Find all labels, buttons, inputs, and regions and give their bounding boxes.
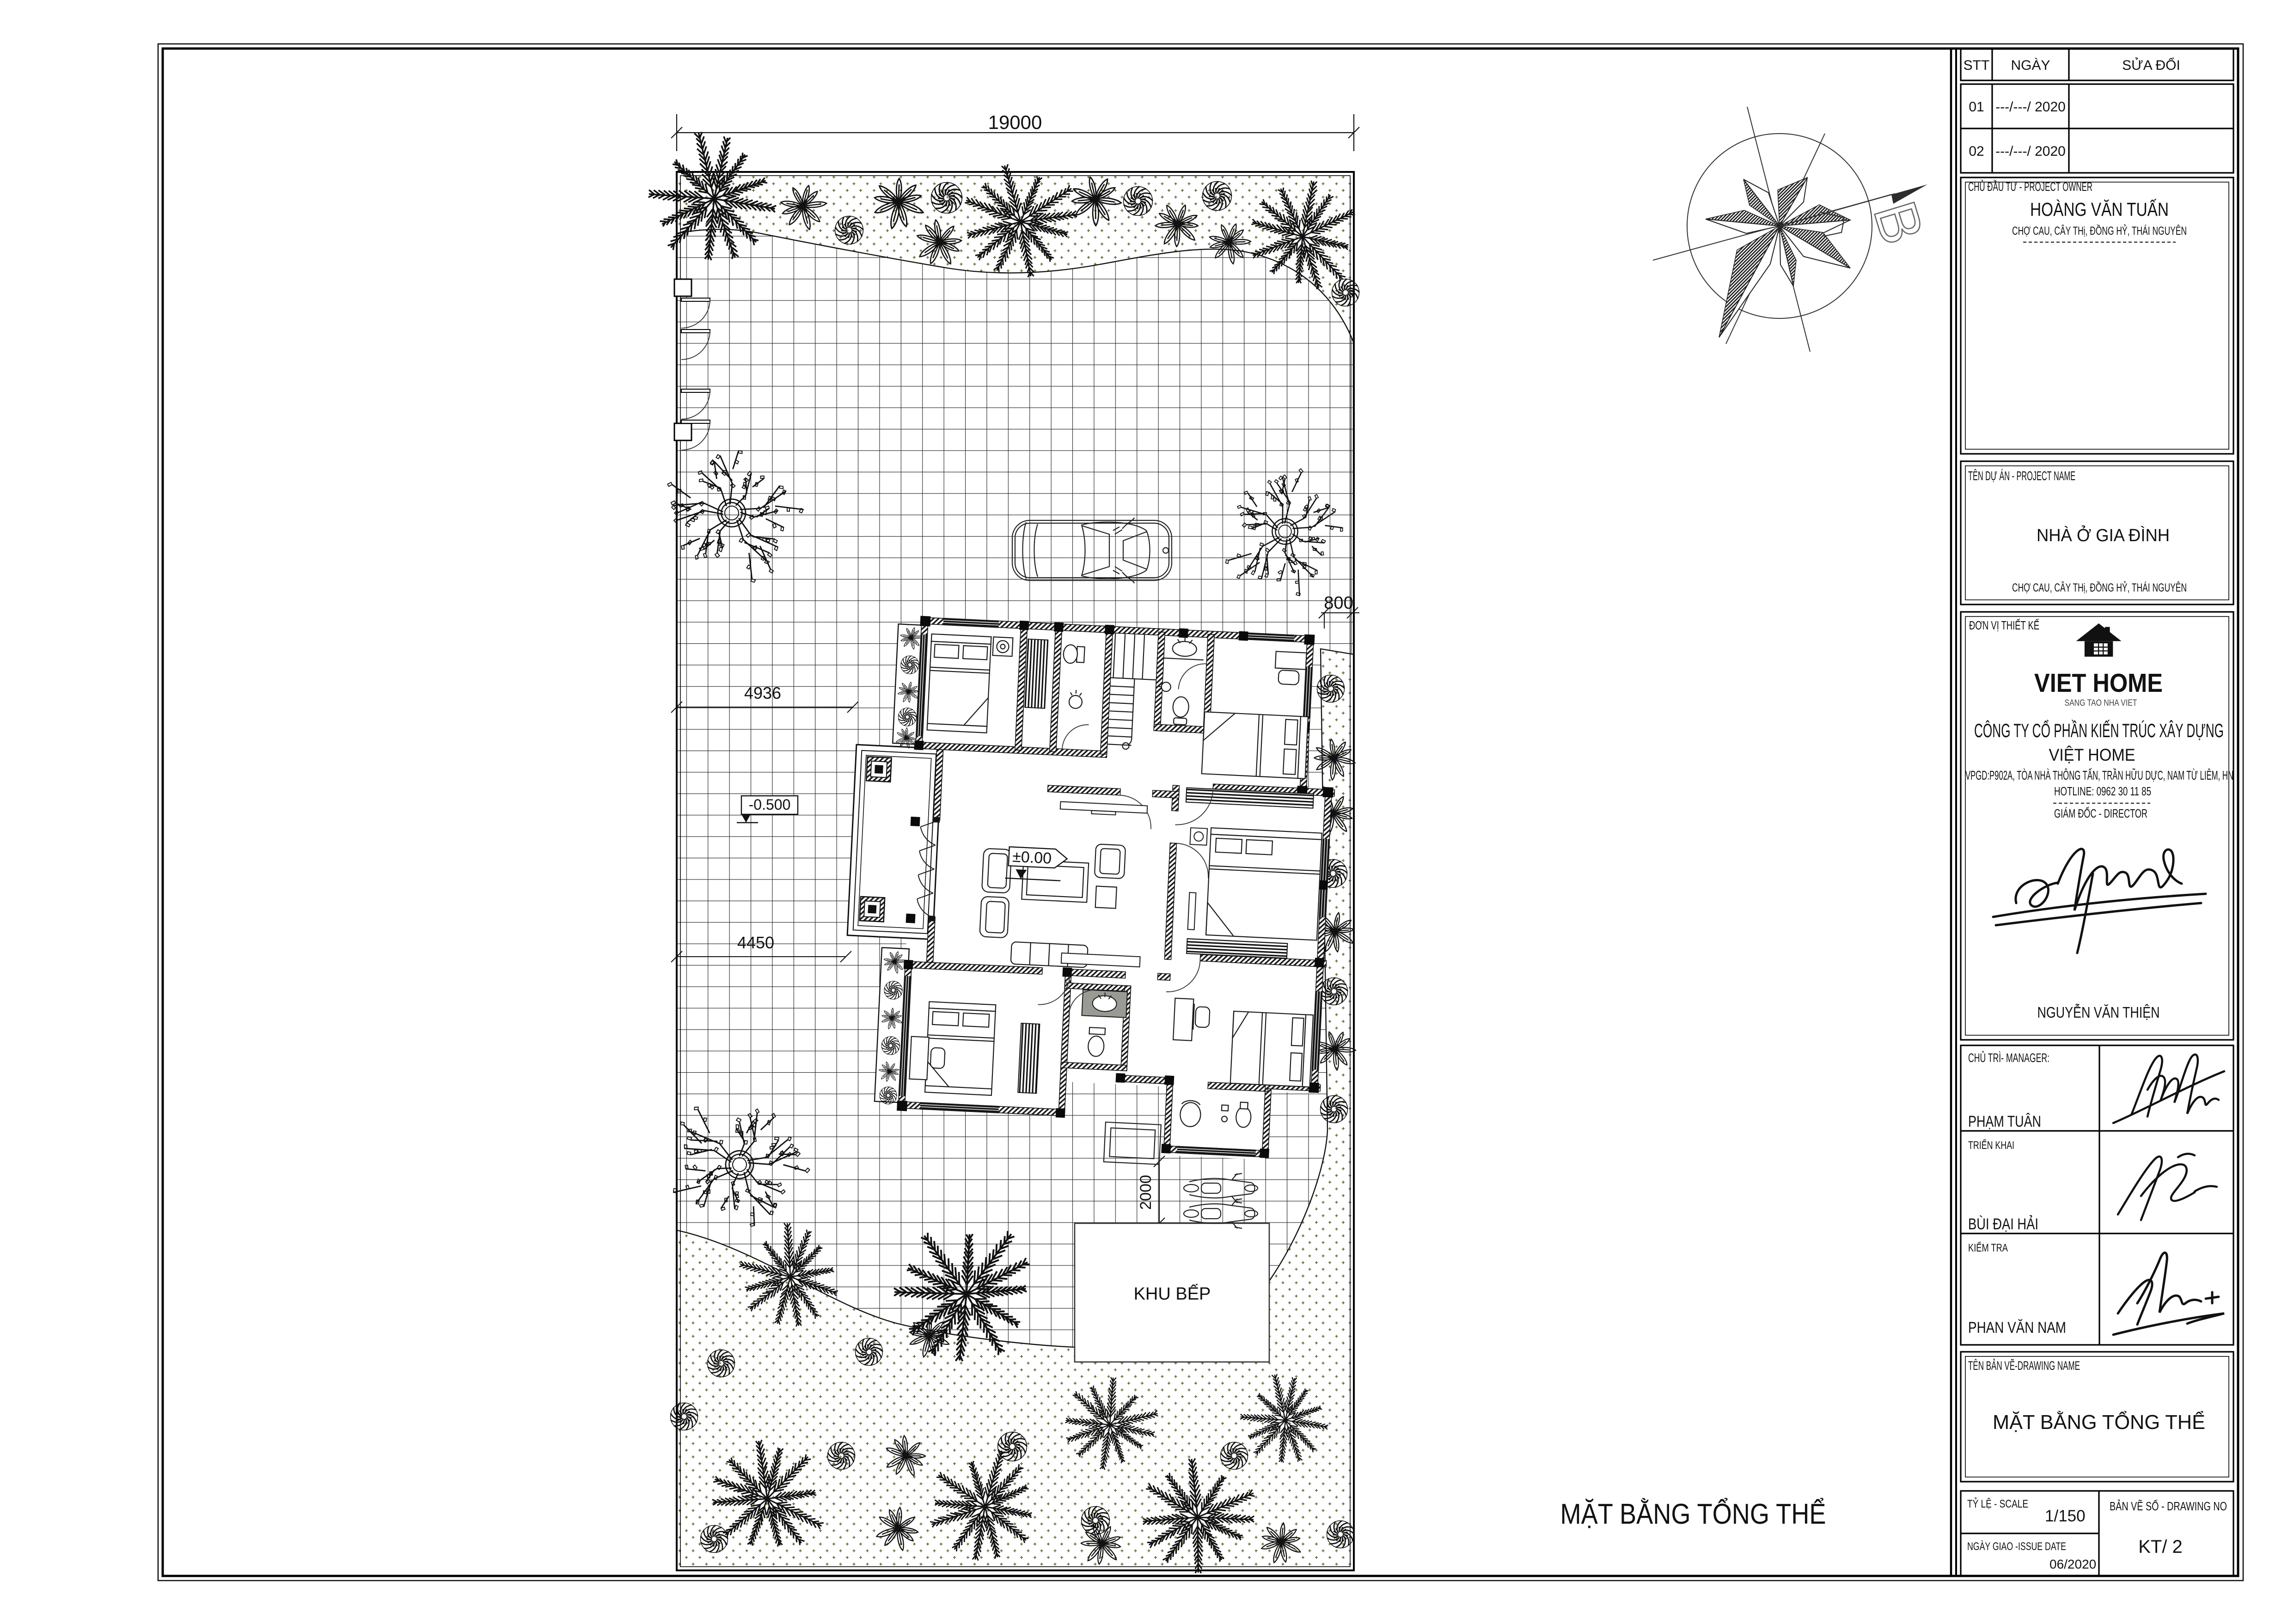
svg-text:PHAN VĂN NAM: PHAN VĂN NAM bbox=[1968, 1319, 2066, 1337]
svg-text:BẢN VẼ SỐ - DRAWING NO: BẢN VẼ SỐ - DRAWING NO bbox=[2110, 1499, 2227, 1513]
svg-text:TỶ LỆ - SCALE: TỶ LỆ - SCALE bbox=[1967, 1497, 2028, 1510]
svg-text:SANG TAO NHA VIET: SANG TAO NHA VIET bbox=[2065, 698, 2137, 708]
svg-text:TÊN DỰ ÁN - PROJECT NAME: TÊN DỰ ÁN - PROJECT NAME bbox=[1968, 469, 2075, 483]
svg-text:CHỦ ĐẦU TƯ - PROJECT OWNER: CHỦ ĐẦU TƯ - PROJECT OWNER bbox=[1968, 179, 2092, 194]
svg-text:NGÀY GIAO -ISSUE DATE: NGÀY GIAO -ISSUE DATE bbox=[1967, 1540, 2066, 1553]
svg-text:BÙI ĐẠI HẢI: BÙI ĐẠI HẢI bbox=[1968, 1215, 2038, 1233]
svg-text:VPGD:P902A, TÒA NHÀ THÔNG TẤN,: VPGD:P902A, TÒA NHÀ THÔNG TẤN, TRẦN HỮU … bbox=[1965, 768, 2233, 782]
svg-text:ĐƠN VỊ THIẾT KẾ: ĐƠN VỊ THIẾT KẾ bbox=[1969, 618, 2039, 632]
svg-text:19000: 19000 bbox=[988, 111, 1042, 133]
svg-text:NGUYỄN VĂN THIỆN: NGUYỄN VĂN THIỆN bbox=[2037, 1004, 2160, 1021]
svg-text:CHỦ TRÌ- MANAGER:: CHỦ TRÌ- MANAGER: bbox=[1968, 1050, 2049, 1065]
svg-text:±0.00: ±0.00 bbox=[1012, 848, 1052, 867]
svg-text:GIÁM ĐỐC - DIRECTOR: GIÁM ĐỐC - DIRECTOR bbox=[2054, 806, 2147, 820]
svg-text:KHU BẾP: KHU BẾP bbox=[1134, 1283, 1211, 1304]
svg-text:MẶT BẰNG TỔNG THỂ: MẶT BẰNG TỔNG THỂ bbox=[1560, 1498, 1826, 1530]
svg-text:800: 800 bbox=[1324, 593, 1353, 613]
svg-text:PHẠM TUÂN: PHẠM TUÂN bbox=[1968, 1113, 2041, 1130]
svg-text:CHỢ CAU, CÂY THị, ĐỒNG HỶ, THÁ: CHỢ CAU, CÂY THị, ĐỒNG HỶ, THÁI NGUYÊN bbox=[2012, 224, 2187, 238]
svg-text:4936: 4936 bbox=[744, 684, 781, 702]
svg-text:01: 01 bbox=[1969, 99, 1984, 115]
svg-text:VIET HOME: VIET HOME bbox=[2034, 668, 2163, 698]
svg-text:4450: 4450 bbox=[737, 933, 774, 952]
svg-text:NGÀY: NGÀY bbox=[2011, 58, 2050, 73]
svg-text:02: 02 bbox=[1969, 144, 1984, 159]
svg-text:NHÀ Ở GIA ĐÌNH: NHÀ Ở GIA ĐÌNH bbox=[2037, 525, 2170, 545]
svg-text:HOÀNG VĂN TUẤN: HOÀNG VĂN TUẤN bbox=[2030, 199, 2169, 220]
svg-text:HOTLINE: 0962 30 11 85: HOTLINE: 0962 30 11 85 bbox=[2054, 784, 2151, 798]
svg-text:CHỢ CAU, CÂY THị, ĐỒNG HỶ, THÁ: CHỢ CAU, CÂY THị, ĐỒNG HỶ, THÁI NGUYÊN bbox=[2012, 580, 2187, 594]
svg-text:CÔNG TY CỔ PHẦN KIẾN TRÚC XÂY: CÔNG TY CỔ PHẦN KIẾN TRÚC XÂY DỰNG bbox=[1974, 719, 2224, 741]
svg-text:TÊN BẢN VẼ-DRAWING NAME: TÊN BẢN VẼ-DRAWING NAME bbox=[1968, 1358, 2080, 1373]
svg-text:KT/ 2: KT/ 2 bbox=[2138, 1537, 2183, 1557]
svg-text:KIỂM TRA: KIỂM TRA bbox=[1968, 1241, 2008, 1254]
svg-text:SỬA ĐỔI: SỬA ĐỔI bbox=[2122, 57, 2180, 73]
svg-text:---/---/ 2020: ---/---/ 2020 bbox=[1995, 99, 2066, 115]
svg-text:2000: 2000 bbox=[1137, 1175, 1155, 1210]
svg-text:VIỆT HOME: VIỆT HOME bbox=[2049, 745, 2135, 764]
svg-text:MẶT BẰNG TỔNG THỂ: MẶT BẰNG TỔNG THỂ bbox=[1993, 1410, 2205, 1434]
svg-text:STT: STT bbox=[1964, 58, 1990, 73]
svg-text:1/150: 1/150 bbox=[2045, 1507, 2086, 1525]
svg-text:06/2020: 06/2020 bbox=[2049, 1557, 2096, 1571]
svg-text:TRIỂN KHAI: TRIỂN KHAI bbox=[1968, 1139, 2014, 1152]
svg-text:---/---/ 2020: ---/---/ 2020 bbox=[1995, 144, 2066, 159]
svg-text:-0.500: -0.500 bbox=[749, 796, 791, 813]
